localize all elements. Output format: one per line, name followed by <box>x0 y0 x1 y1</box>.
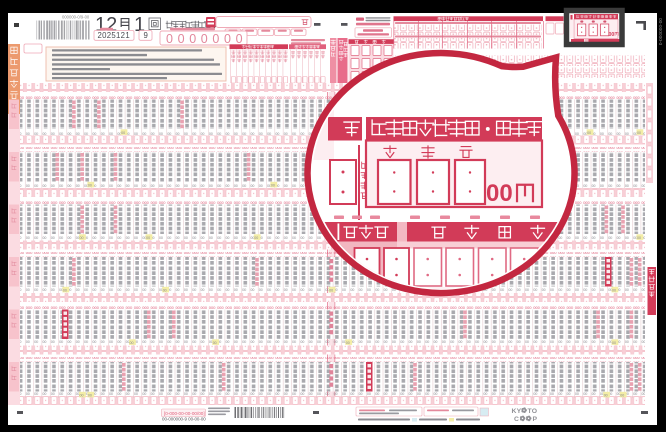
svg-text:000000-0/9-00: 000000-0/9-00 <box>62 15 90 20</box>
svg-text:0: 0 <box>166 32 173 46</box>
svg-text:0: 0 <box>236 32 243 46</box>
svg-text:00: 00 <box>88 184 92 188</box>
svg-text:00: 00 <box>620 394 624 398</box>
svg-text:00-000000-0: 00-000000-0 <box>657 18 663 46</box>
svg-text:2025121: 2025121 <box>98 31 130 40</box>
svg-text:00: 00 <box>63 289 67 293</box>
svg-text:KY: KY <box>512 408 522 415</box>
svg-text:9: 9 <box>144 31 148 40</box>
svg-text:00: 00 <box>121 131 125 135</box>
svg-text:0: 0 <box>224 32 231 46</box>
svg-text:00: 00 <box>604 394 608 398</box>
svg-text:00: 00 <box>254 236 258 240</box>
svg-text:00: 00 <box>329 289 333 293</box>
svg-text:00: 00 <box>80 236 84 240</box>
svg-text:00: 00 <box>213 341 217 345</box>
svg-text:00: 00 <box>609 32 615 38</box>
svg-text:00: 00 <box>163 289 167 293</box>
svg-text:00: 00 <box>637 131 641 135</box>
svg-text:00-000000-9 00-00-00: 00-000000-9 00-00-00 <box>162 417 206 422</box>
svg-text:00: 00 <box>637 236 641 240</box>
svg-text:TO: TO <box>528 408 538 415</box>
svg-text:00: 00 <box>612 289 616 293</box>
svg-text:0: 0 <box>178 32 185 46</box>
svg-text:0: 0 <box>189 32 196 46</box>
svg-text:00: 00 <box>587 131 591 135</box>
svg-text:C: C <box>514 416 519 423</box>
svg-text:00: 00 <box>346 341 350 345</box>
svg-text:0: 0 <box>212 32 219 46</box>
svg-text:00: 00 <box>146 236 150 240</box>
svg-text:00: 00 <box>271 184 275 188</box>
svg-text:00: 00 <box>486 180 513 207</box>
svg-text:0: 0 <box>201 32 208 46</box>
svg-text:00: 00 <box>130 341 134 345</box>
svg-text:[0-000-00-00-00/00]: [0-000-00-00-00/00] <box>164 411 205 416</box>
svg-text:00: 00 <box>80 394 84 398</box>
svg-text:P: P <box>533 416 538 423</box>
svg-text:00: 00 <box>612 341 616 345</box>
svg-text:00: 00 <box>88 394 92 398</box>
